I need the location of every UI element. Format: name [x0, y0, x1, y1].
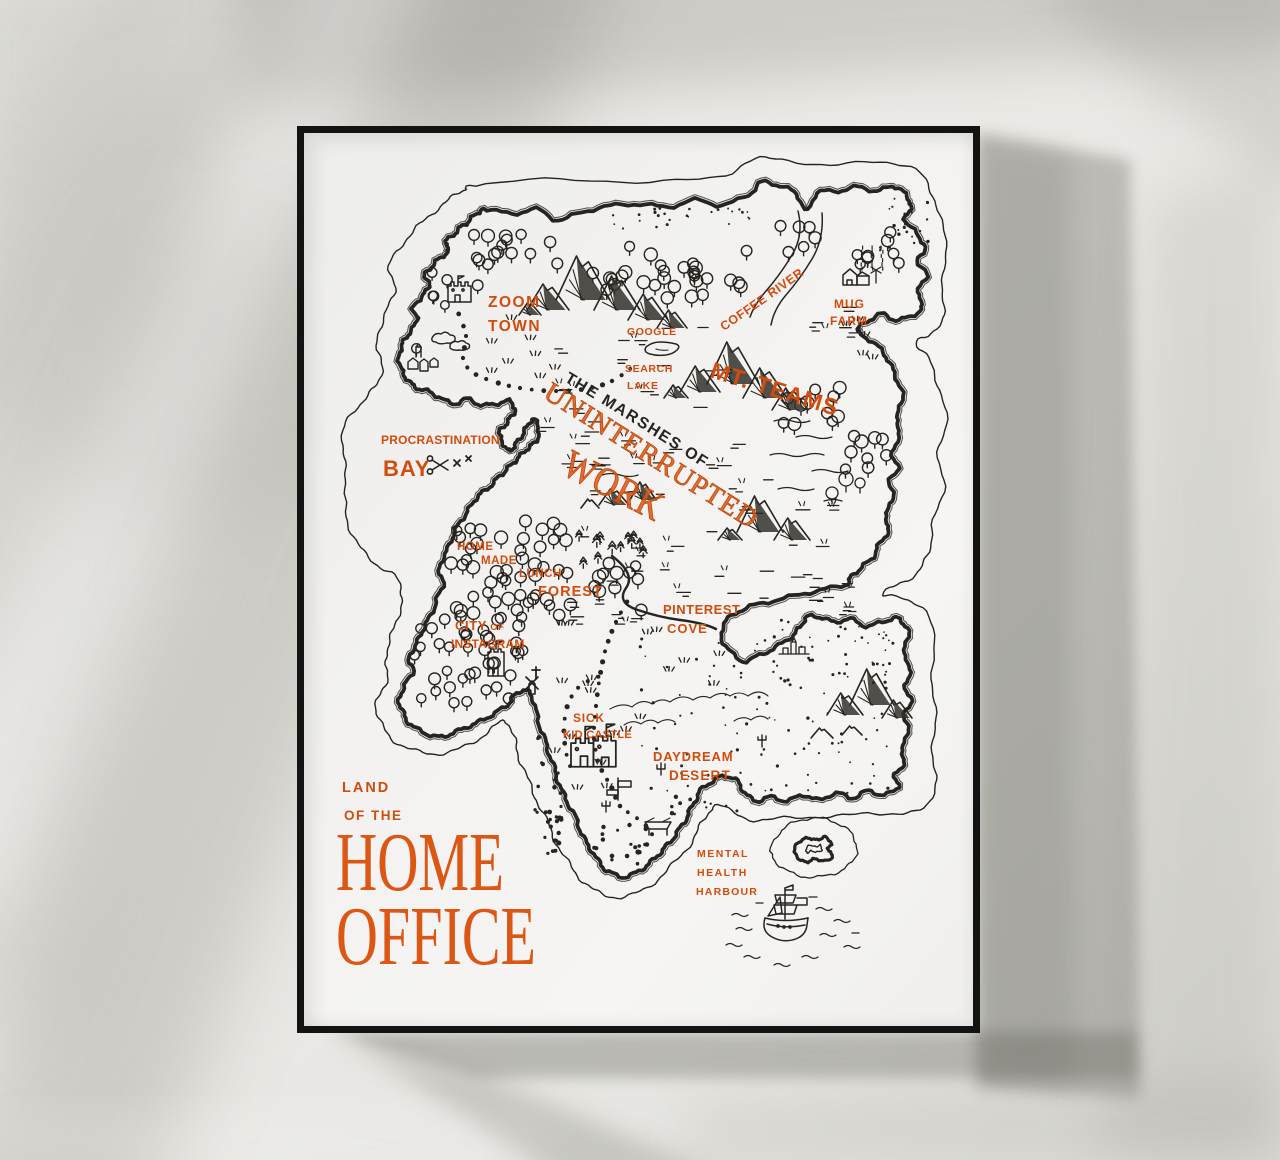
svg-text:BAY: BAY — [383, 456, 430, 481]
svg-text:LAND: LAND — [342, 780, 390, 796]
svg-text:LUNCH: LUNCH — [519, 568, 562, 580]
svg-text:MT. TEAMS: MT. TEAMS — [708, 357, 843, 421]
svg-text:FARM: FARM — [830, 314, 868, 328]
svg-text:PROCRASTINATION: PROCRASTINATION — [381, 433, 500, 447]
svg-text:DESERT: DESERT — [669, 768, 731, 783]
svg-text:COVE: COVE — [667, 621, 708, 636]
svg-text:HOME: HOME — [457, 541, 494, 553]
svg-text:MENTAL: MENTAL — [697, 848, 749, 860]
svg-text:SEARCH: SEARCH — [625, 363, 673, 375]
svg-text:OFFICE: OFFICE — [336, 890, 536, 983]
svg-text:ZOOM: ZOOM — [488, 294, 541, 311]
svg-text:MADE: MADE — [481, 555, 517, 567]
svg-text:SICK: SICK — [573, 711, 605, 725]
svg-text:PINTEREST: PINTEREST — [663, 602, 740, 617]
svg-text:KID CASTLE: KID CASTLE — [563, 729, 632, 741]
svg-text:TOWN: TOWN — [488, 318, 541, 335]
svg-text:INSTAGRAM: INSTAGRAM — [451, 637, 525, 651]
svg-text:CITY OF: CITY OF — [455, 618, 505, 633]
svg-text:DAYDREAM: DAYDREAM — [653, 749, 733, 764]
svg-text:FOREST: FOREST — [538, 584, 603, 600]
svg-text:HEALTH: HEALTH — [697, 867, 748, 879]
svg-text:MUG: MUG — [834, 297, 865, 311]
svg-text:GOOGLE: GOOGLE — [627, 326, 677, 338]
svg-text:COFFEE RIVER: COFFEE RIVER — [718, 266, 807, 334]
svg-text:LAKE: LAKE — [627, 380, 659, 392]
svg-text:HARBOUR: HARBOUR — [696, 886, 758, 898]
